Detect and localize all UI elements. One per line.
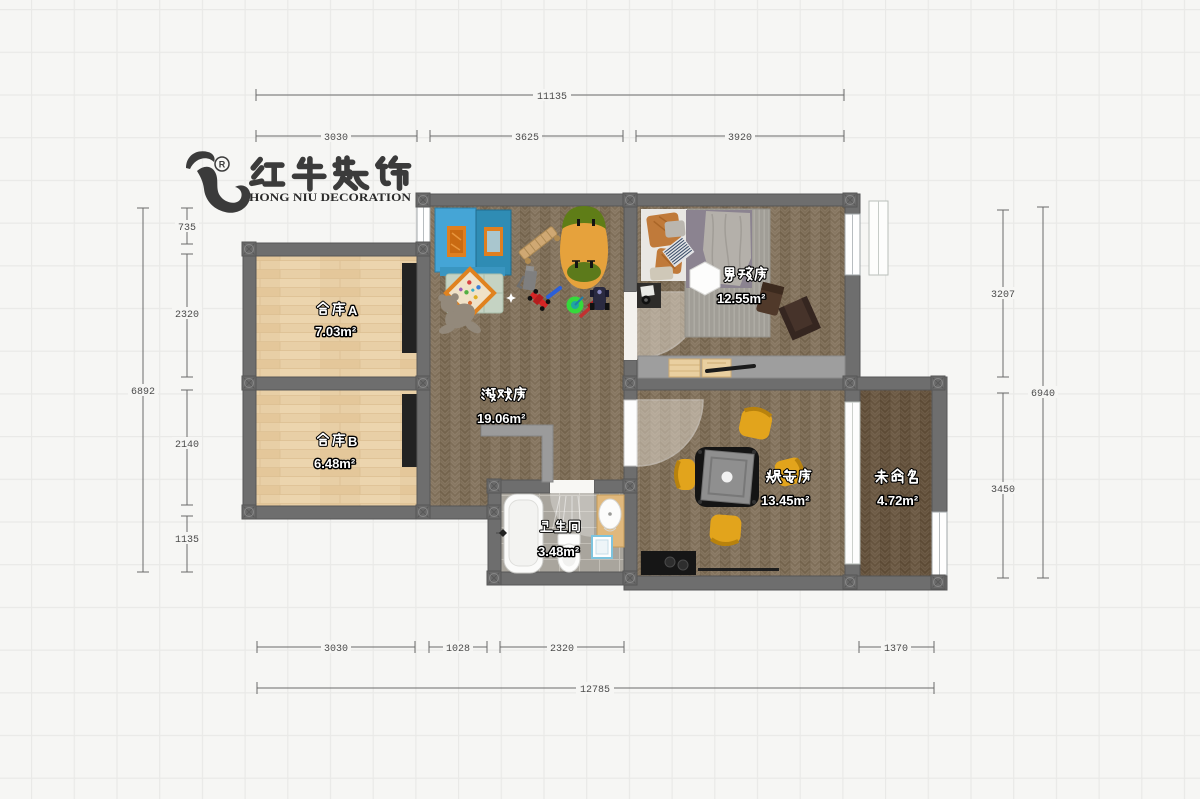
svg-text:2140: 2140 [175,440,199,451]
svg-text:3920: 3920 [728,133,752,144]
svg-text:3030: 3030 [324,644,348,655]
svg-text:13.45m²: 13.45m² [761,493,810,508]
svg-text:2320: 2320 [175,310,199,321]
svg-text:6.48m²: 6.48m² [314,456,356,471]
svg-text:12785: 12785 [580,685,610,696]
svg-text:3625: 3625 [515,133,539,144]
svg-text:2320: 2320 [550,644,574,655]
svg-text:1135: 1135 [175,535,199,546]
svg-text:19.06m²: 19.06m² [477,411,526,426]
svg-text:3030: 3030 [324,133,348,144]
svg-text:3.48m²: 3.48m² [538,544,580,559]
svg-text:4.72m²: 4.72m² [877,493,919,508]
svg-text:3207: 3207 [991,290,1015,301]
svg-text:6940: 6940 [1031,389,1055,400]
svg-text:6892: 6892 [131,387,155,398]
svg-text:12.55m²: 12.55m² [717,291,766,306]
svg-text:A: A [348,303,358,318]
svg-text:11135: 11135 [537,92,567,103]
svg-text:HONG NIU DECORATION: HONG NIU DECORATION [249,192,412,204]
svg-text:7.03m²: 7.03m² [315,324,357,339]
svg-text:1370: 1370 [884,644,908,655]
svg-text:R: R [219,160,226,170]
svg-text:1028: 1028 [446,644,470,655]
svg-text:B: B [348,434,357,449]
svg-text:3450: 3450 [991,485,1015,496]
svg-text:735: 735 [178,223,196,234]
